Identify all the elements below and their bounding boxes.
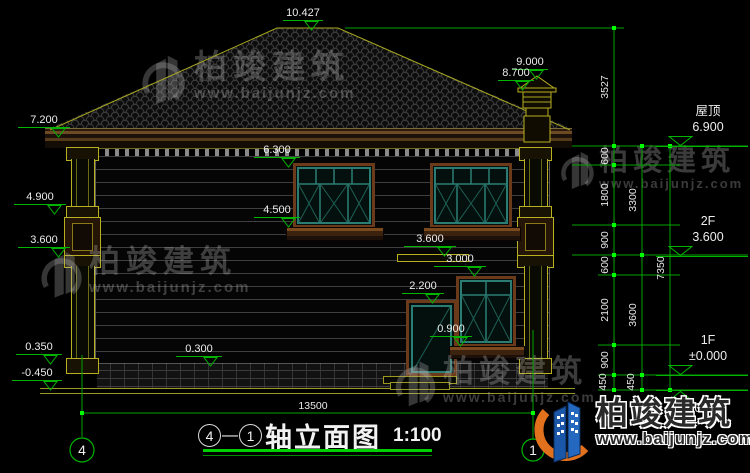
dim-450a: 450: [597, 373, 609, 391]
elevation-triangle-icon: [467, 267, 482, 277]
title-scale: 1:100: [393, 425, 442, 447]
elevation-marker-window2-top: 6.300: [254, 144, 300, 168]
dim-600a: 600: [599, 147, 611, 165]
elevation-triangle-icon: [203, 357, 218, 367]
elevation-value: 3.600: [404, 233, 456, 247]
dim-900a: 900: [599, 231, 611, 249]
elevation-value: 6.900: [656, 119, 748, 136]
elevation-marker-window2-sill: 4.500: [254, 204, 300, 228]
cad-elevation-canvas: 柏竣建筑 www.baijunjz.com 柏竣建筑 www.baijunjz.…: [0, 0, 750, 473]
elevation-value: ±0.000: [656, 348, 748, 365]
dim-600b: 600: [599, 256, 611, 274]
elevation-triangle-icon: [43, 381, 58, 391]
elevation-triangle-icon: [668, 365, 693, 375]
elevation-marker-door-top: 2.200: [402, 280, 444, 304]
elevation-marker-2f: 2F 3.600: [656, 213, 748, 257]
footer-brand-name: 柏竣建筑: [596, 396, 750, 430]
axis-bubble-left-label: 4: [78, 442, 86, 458]
elevation-value: 0.300: [176, 343, 222, 357]
roof-outline: [50, 28, 570, 130]
elevation-marker-window1-sill: 0.900: [430, 323, 472, 347]
title-axis-left-bubble: 4: [198, 424, 221, 447]
elevation-marker-floor2-left: 3.600: [18, 234, 70, 258]
elevation-value: 10.427: [283, 7, 323, 21]
elevation-triangle-icon: [43, 355, 58, 365]
floor-label: 2F: [656, 213, 748, 229]
dim-13500: 13500: [298, 400, 327, 412]
elevation-value: 4.900: [14, 191, 66, 205]
brand-logo-icon: [530, 396, 592, 464]
elevation-marker-1f: 1F ±0.000: [656, 332, 748, 376]
dim-roof-height: 3527: [599, 75, 611, 99]
elevation-line: [656, 136, 748, 147]
elevation-value: 6.300: [254, 144, 300, 158]
title-axis-separator: —: [222, 427, 238, 445]
elevation-marker-plinth-left: 0.350: [16, 341, 62, 365]
elevation-triangle-icon: [425, 294, 440, 304]
elevation-value: 7.200: [18, 114, 70, 128]
elevation-triangle-icon: [453, 337, 468, 347]
elevation-triangle-icon: [47, 205, 62, 215]
elevation-value: 3.000: [434, 253, 486, 267]
elevation-value: 3.600: [656, 229, 748, 246]
elevation-triangle-icon: [281, 218, 296, 228]
elevation-value: 0.900: [430, 323, 472, 337]
elevation-triangle-icon: [51, 248, 66, 258]
elevation-value: 3.600: [18, 234, 70, 248]
elevation-value: 0.350: [16, 341, 62, 355]
elevation-triangle-icon: [304, 21, 319, 31]
elevation-value: 2.200: [402, 280, 444, 294]
footer-brand-site: www.baijunjz.com: [596, 430, 750, 448]
elevation-line: [656, 246, 748, 257]
dim-2100: 2100: [599, 298, 611, 322]
elevation-value: 4.500: [254, 204, 300, 218]
elevation-triangle-icon: [668, 136, 693, 146]
elevation-marker-window1-top: 3.000: [434, 253, 486, 277]
elevation-marker-eave: 7.200: [18, 114, 70, 138]
elevation-marker-ground-left: -0.450: [12, 367, 62, 391]
title-underline: [203, 449, 432, 452]
dim-3600: 3600: [627, 303, 639, 327]
elevation-line: [656, 365, 748, 376]
elevation-value: -0.450: [12, 367, 62, 381]
dim-1800: 1800: [599, 183, 611, 207]
elevation-value: 8.700: [498, 67, 534, 81]
elevation-marker-chimney-base: 8.700: [498, 67, 534, 91]
elevation-triangle-icon: [281, 158, 296, 168]
elevation-triangle-icon: [51, 128, 66, 138]
elevation-marker-plinth-mid: 0.300: [176, 343, 222, 367]
elevation-marker-ridge: 10.427: [283, 7, 323, 31]
floor-label: 1F: [656, 332, 748, 348]
elevation-triangle-icon: [668, 246, 693, 256]
elevation-marker-porch-capital: 4.900: [14, 191, 66, 215]
title-axis-right-bubble: 1: [239, 424, 262, 447]
dim-450b: 450: [625, 373, 637, 391]
floor-label: 屋顶: [656, 103, 748, 119]
elevation-marker-roof: 屋顶 6.900: [656, 103, 748, 147]
dim-3300: 3300: [627, 188, 639, 212]
dim-7350: 7350: [655, 256, 667, 280]
elevation-triangle-icon: [515, 81, 530, 91]
title-underline-thin: [203, 455, 432, 456]
footer-brand-logo: 柏竣建筑 www.baijunjz.com: [530, 396, 750, 464]
dim-900b: 900: [599, 351, 611, 369]
